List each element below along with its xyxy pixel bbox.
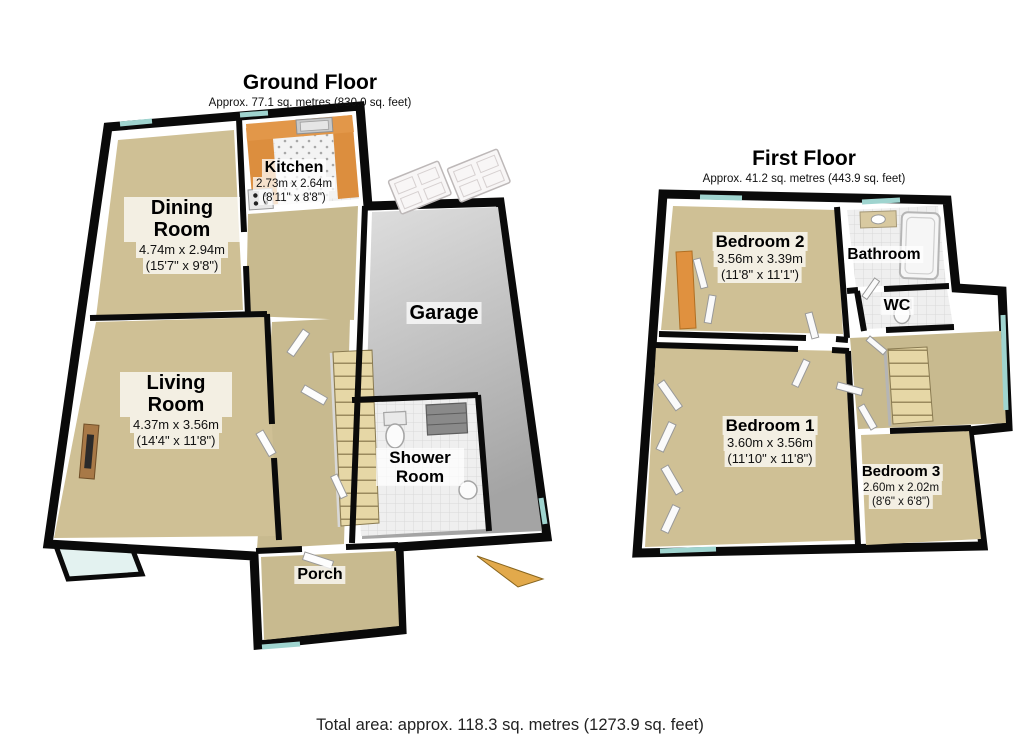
room-name: Bedroom 3 [859,464,943,481]
room-name: Living Room [120,372,232,417]
room-name: Bedroom 1 [723,416,818,435]
room-dim-imperial: (14'4" x 11'8") [134,433,219,449]
room-label-wc: WC [881,297,914,315]
first-floor-plan [637,194,1008,553]
vanity-icon [860,211,897,228]
room-name: Garage [407,302,482,324]
room-name: Bathroom [844,246,923,263]
room-name: Bedroom 2 [713,232,808,251]
room-dim-imperial: (15'7" x 9'8") [143,258,222,274]
room-dim-imperial: (11'10" x 11'8") [724,451,815,467]
room-label-bedroom3: Bedroom 3 2.60m x 2.02m (8'6" x 6'8") [859,464,943,509]
first-floor-title-text: First Floor [703,148,906,170]
room-name: Kitchen [262,159,327,177]
first-floor-area-text: Approx. 41.2 sq. metres (443.9 sq. feet) [703,173,906,185]
room-label-garage: Garage [407,302,482,324]
shelf-unit-icon [426,403,468,435]
room-name: Shower Room [376,448,464,486]
ff-staircase [888,347,933,424]
ground-floor-title-text: Ground Floor [209,72,412,94]
total-area-text: Total area: approx. 118.3 sq. metres (12… [316,716,704,735]
floor-plan-page: Ground Floor Approx. 77.1 sq. metres (83… [0,0,1024,745]
room-name: WC [881,297,914,315]
room-dim-imperial: (11'8" x 11'1") [718,267,802,283]
room-label-dining: Dining Room 4.74m x 2.94m (15'7" x 9'8") [124,197,240,274]
front-door-swing [477,556,543,587]
room-label-shower: Shower Room [376,448,464,486]
room-label-kitchen: Kitchen 2.73m x 2.64m (8'11" x 8'8") [253,159,335,205]
ground-floor-title: Ground Floor Approx. 77.1 sq. metres (83… [209,72,412,109]
room-dim-imperial: (8'11" x 8'8") [259,191,328,205]
room-name: Porch [294,566,345,584]
room-dim-imperial: (8'6" x 6'8") [869,495,933,509]
first-floor-title: First Floor Approx. 41.2 sq. metres (443… [703,148,906,185]
room-name: Dining Room [124,197,240,242]
room-dim-metric: 3.56m x 3.39m [714,251,806,267]
room-label-porch: Porch [294,566,345,584]
room-dim-metric: 4.74m x 2.94m [136,242,228,258]
room-label-living: Living Room 4.37m x 3.56m (14'4" x 11'8"… [120,372,232,449]
room-label-bathroom: Bathroom [844,246,923,263]
room-label-bedroom2: Bedroom 2 3.56m x 3.39m (11'8" x 11'1") [713,232,808,283]
room-dim-metric: 3.60m x 3.56m [724,435,816,451]
room-dim-metric: 2.60m x 2.02m [860,481,942,495]
wardrobe-icon [676,251,696,329]
sink-icon [296,117,333,133]
toilet-icon [384,411,407,448]
garage-door-icon [447,149,511,203]
room-label-bedroom1: Bedroom 1 3.60m x 3.56m (11'10" x 11'8") [723,416,818,467]
room-dim-metric: 4.37m x 3.56m [130,417,222,433]
ground-floor-area-text: Approx. 77.1 sq. metres (830.0 sq. feet) [209,97,412,109]
hall-floor-upper [246,206,358,320]
room-dim-metric: 2.73m x 2.64m [253,177,335,191]
